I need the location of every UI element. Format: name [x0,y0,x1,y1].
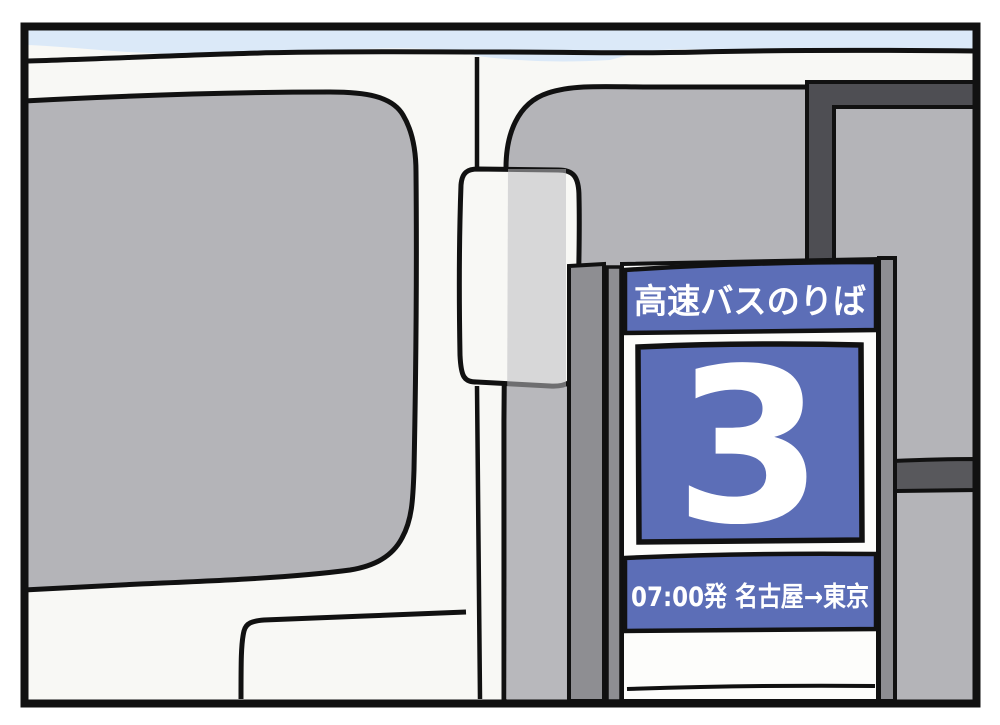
comic-panel: 高速バスのりば 3 07:00発 名古屋→東京 [0,0,1000,725]
bay-number-text: 3 [675,323,824,572]
sign-post-right [879,258,895,701]
bus-side-window [24,92,416,590]
pillar-seam-lower [477,386,480,699]
pillar-strip [506,169,566,699]
sign-title-text: 高速バスのりば [634,282,866,322]
wall-rail [890,459,976,491]
departure-text: 07:00発 名古屋→東京 [631,581,869,613]
sign-post-left-inner [607,267,621,701]
bus-stop-illustration: 高速バスのりば 3 07:00発 名古屋→東京 [0,0,1000,725]
sign-post-left [569,264,604,701]
